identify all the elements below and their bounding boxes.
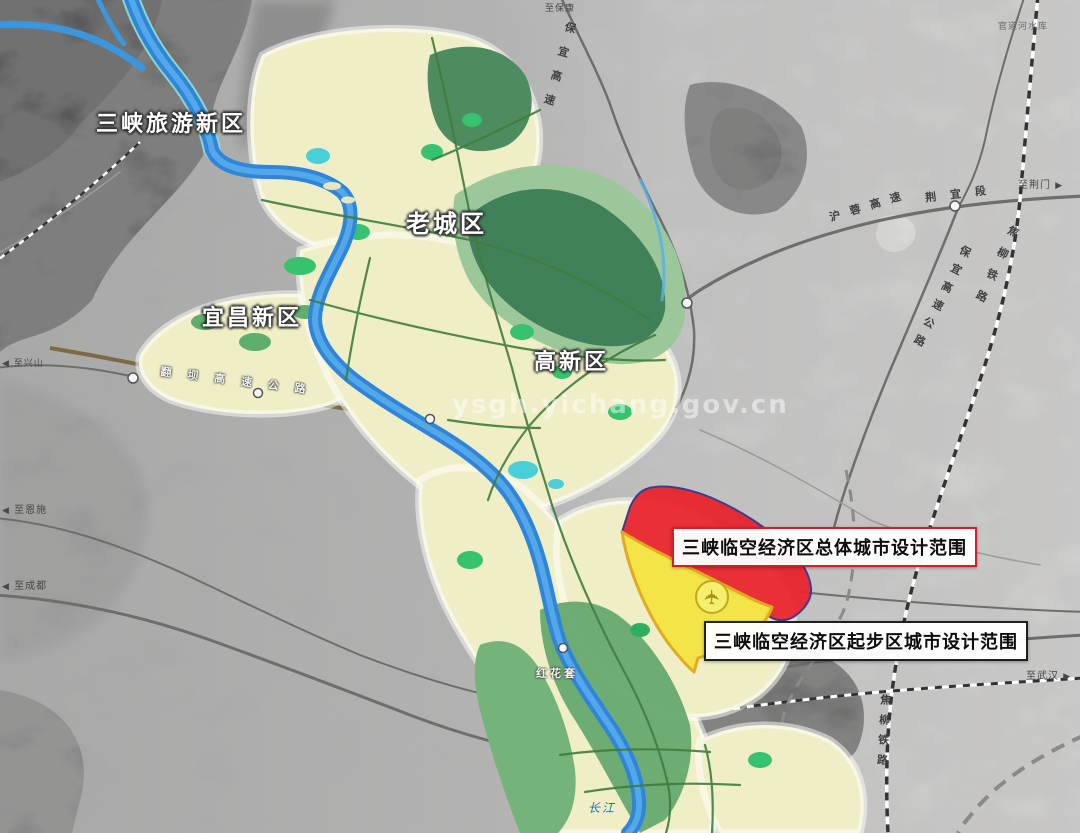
- edge-label-to-enshi: ◀ 至恩施: [2, 506, 47, 516]
- region-label-yichang-new: 宜昌新区: [202, 308, 302, 330]
- region-label-hightech: 高新区: [534, 352, 609, 374]
- arrow-left-icon: ◀: [2, 359, 10, 369]
- place-label-yangtze: 长江: [588, 802, 616, 814]
- place-label-honghuatao: 红花套: [536, 668, 578, 679]
- watermark: ysgh.yichang.gov.cn: [452, 392, 789, 418]
- arrow-left-icon: ◀: [2, 506, 10, 516]
- planning-map: ✈ 三峡旅游新区 老城区 宜昌新区 高新区 三峡临空经济区总体城市设计范围 三峡…: [0, 0, 1080, 833]
- arrow-right-icon: ▶: [1055, 181, 1063, 191]
- edge-label-to-chengdu: ◀ 至成都: [2, 582, 47, 592]
- edge-label-to-xingshan: ◀ 至兴山: [2, 360, 44, 369]
- edge-label-to-jingmen: 至荆门 ▶: [1018, 181, 1063, 191]
- edge-label-to-wuhan: 至武汉 ▶: [1026, 672, 1071, 682]
- svg-text:✈: ✈: [700, 589, 724, 606]
- arrow-left-icon: ◀: [2, 582, 10, 592]
- place-label-guandaohe-reservoir: 官道河水库: [998, 23, 1048, 32]
- region-label-old-city: 老城区: [406, 212, 487, 236]
- arrow-right-icon: ▶: [1063, 672, 1071, 682]
- callout-overall-zone: 三峡临空经济区总体城市设计范围: [672, 527, 977, 567]
- callout-starter-zone: 三峡临空经济区起步区城市设计范围: [704, 621, 1028, 661]
- edge-label-to-baokang: 至保康: [545, 5, 575, 14]
- airport-icon: ✈: [696, 581, 728, 613]
- region-label-tourism: 三峡旅游新区: [96, 114, 246, 136]
